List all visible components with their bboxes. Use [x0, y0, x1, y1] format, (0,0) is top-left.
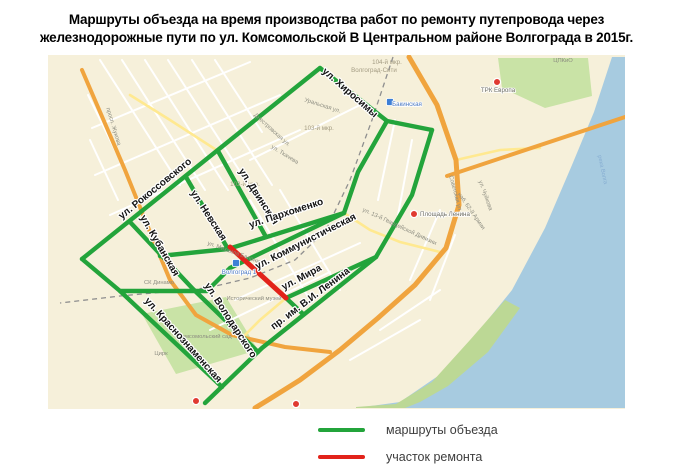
marker-volgograd-1-label: Волгоград 1 [222, 269, 257, 276]
page-title-line-2: железнодорожные пути по ул. Комсомольско… [0, 29, 673, 47]
map-minor-label: СК Динамо [144, 280, 174, 286]
legend-item-detour: маршруты объезда [318, 416, 498, 443]
page-title: Маршруты объезда на время производства р… [0, 11, 673, 47]
legend: маршруты объезда участок ремонта [318, 416, 498, 470]
repair-section-label: участок ремонта [386, 450, 482, 464]
map-minor-label: 104-й мкр. [372, 59, 402, 66]
detour-map: ТРК ЕвропаПлощадь ЛенинаБакинскаяВолгогр… [48, 55, 625, 409]
marker-trk-evropa [493, 78, 500, 85]
page-title-line-1: Маршруты объезда на время производства р… [0, 11, 673, 29]
map-minor-label: ЦПКиО [553, 58, 573, 64]
map-canvas: ТРК ЕвропаПлощадь ЛенинаБакинскаяВолгогр… [48, 55, 625, 409]
page: { "title": { "line1": "Маршруты объезда … [0, 0, 673, 476]
detour-route-label: маршруты объезда [386, 423, 498, 437]
legend-item-repair: участок ремонта [318, 443, 498, 470]
marker-bakinskaya-label: Бакинская [392, 101, 422, 108]
marker-south-2 [292, 400, 299, 407]
repair-section-swatch [318, 455, 365, 459]
map-minor-label: Волгоград-Сити [351, 67, 397, 74]
marker-south-1 [192, 397, 199, 404]
marker-trk-evropa-label: ТРК Европа [481, 87, 516, 94]
marker-ploshchad-lenina-label: Площадь Ленина [420, 211, 470, 218]
marker-ploshchad-lenina [410, 210, 417, 217]
map-minor-label: Исторический музей [226, 295, 281, 302]
map-minor-label: 103-й мкр. [304, 125, 334, 132]
detour-route-swatch [318, 428, 365, 432]
map-minor-label: Цирк [154, 351, 168, 357]
marker-volgograd-1 [233, 260, 240, 267]
